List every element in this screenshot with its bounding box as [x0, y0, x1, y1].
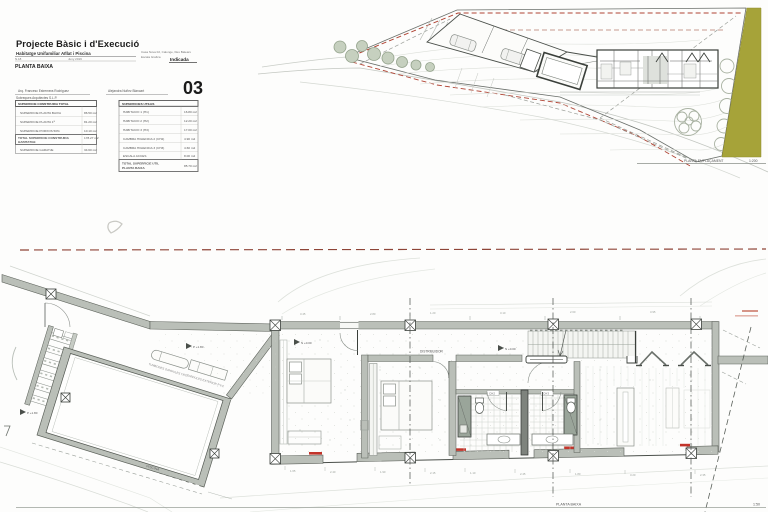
svg-text:1.65: 1.65 — [290, 469, 296, 473]
svg-text:1.90: 1.90 — [380, 470, 386, 474]
svg-text:N +0.00: N +0.00 — [505, 347, 516, 351]
svg-text:8.00 m2: 8.00 m2 — [184, 154, 195, 158]
svg-text:2.35: 2.35 — [700, 473, 706, 477]
svg-text:2.15: 2.15 — [430, 471, 436, 475]
svg-text:3.10: 3.10 — [500, 311, 506, 315]
svg-text:PLANTA BAIXA: PLANTA BAIXA — [122, 166, 145, 170]
svg-text:PLANTA BAIXA: PLANTA BAIXA — [15, 64, 53, 70]
svg-text:4.60 m2: 4.60 m2 — [184, 146, 195, 150]
svg-text:3.20: 3.20 — [630, 473, 636, 477]
svg-text:N +0.00: N +0.00 — [301, 341, 312, 345]
svg-text:PLANTA EMPLAÇAMENT: PLANTA EMPLAÇAMENT — [684, 159, 724, 163]
svg-text:81.20 m2: 81.20 m2 — [84, 120, 97, 124]
svg-text:1:50: 1:50 — [753, 503, 760, 507]
svg-text:3.45: 3.45 — [300, 312, 306, 316]
svg-text:3.95: 3.95 — [650, 310, 656, 314]
svg-text:10.10 m2: 10.10 m2 — [84, 129, 97, 133]
svg-text:16.80 m2: 16.80 m2 — [184, 110, 197, 114]
svg-text:1.10: 1.10 — [470, 471, 476, 475]
svg-text:Projecte Bàsic i d'Execució: Projecte Bàsic i d'Execució — [16, 39, 139, 49]
svg-text:DISTRIBUIDOR: DISTRIBUIDOR — [420, 350, 444, 354]
svg-text:TOTAL SUPERFICIE UTIL: TOTAL SUPERFICIE UTIL — [122, 162, 159, 166]
svg-text:17.00 m2: 17.00 m2 — [184, 128, 197, 132]
svg-text:SUPERFICIE GARATJE: SUPERFICIE GARATJE — [20, 148, 53, 152]
svg-text:1.80: 1.80 — [575, 472, 581, 476]
svg-text:86.50 m2: 86.50 m2 — [84, 111, 97, 115]
svg-text:SUPERFICIE PLANTA BAIXA: SUPERFICIE PLANTA BAIXA — [20, 111, 62, 115]
svg-text:HABITACIO 2 (H2): HABITACIO 2 (H2) — [123, 119, 149, 123]
svg-text:34.60 m2: 34.60 m2 — [84, 148, 97, 152]
svg-text:CAMBRA HIGIENICA 2 (CH2): CAMBRA HIGIENICA 2 (CH2) — [123, 137, 164, 141]
svg-text:HABITACIO 3 (H3): HABITACIO 3 (H3) — [123, 128, 149, 132]
svg-text:12.20 m2: 12.20 m2 — [184, 119, 197, 123]
svg-text:P +1.80: P +1.80 — [27, 411, 38, 415]
svg-text:HABITATGE: HABITATGE — [18, 140, 36, 144]
svg-text:Indicada: Indicada — [170, 57, 189, 62]
svg-text:1:200: 1:200 — [749, 159, 758, 163]
svg-text:SUPERFICIE PLANTA 1ª: SUPERFICIE PLANTA 1ª — [20, 120, 56, 124]
svg-text:03: 03 — [183, 78, 203, 98]
svg-text:4.90 m2: 4.90 m2 — [184, 137, 195, 141]
svg-text:Arq. Francesc Estremera Rodri: Arq. Francesc Estremera Rodriguez — [18, 89, 69, 93]
svg-text:CH3: CH3 — [543, 392, 549, 396]
svg-text:Escala Grafica: Escala Grafica — [141, 55, 161, 59]
svg-text:2.80: 2.80 — [370, 312, 376, 316]
svg-text:SUPERFICIES UTILES: SUPERFICIES UTILES — [122, 102, 155, 106]
svg-text:CAMBRA HIGIENICA 3 (CH3): CAMBRA HIGIENICA 3 (CH3) — [123, 146, 164, 150]
svg-text:PLANTA BAIXA: PLANTA BAIXA — [556, 503, 582, 507]
svg-text:85.70 m2: 85.70 m2 — [184, 164, 197, 168]
svg-text:SUPERFICIE CONSTRUIDA TOTAL: SUPERFICIE CONSTRUIDA TOTAL — [18, 102, 69, 106]
svg-text:Casa Nova 02, Calonge, Illes B: Casa Nova 02, Calonge, Illes Balears — [141, 50, 191, 54]
svg-text:CH2: CH2 — [489, 392, 495, 396]
svg-text:N.18: N.18 — [15, 57, 22, 61]
svg-text:Alejandra Nuñez Blancart: Alejandra Nuñez Blancart — [108, 89, 144, 93]
svg-text:HABITACIO 1 (H1): HABITACIO 1 (H1) — [123, 110, 149, 114]
svg-text:1.20: 1.20 — [430, 311, 436, 315]
svg-text:SUPERFICIE PORXOS 50%: SUPERFICIE PORXOS 50% — [20, 129, 60, 133]
svg-text:Sobreques Arquitectes S.L.P.: Sobreques Arquitectes S.L.P. — [16, 96, 57, 100]
svg-text:Juny 2019: Juny 2019 — [68, 57, 82, 61]
svg-text:2.45: 2.45 — [520, 472, 526, 476]
svg-text:ESCALA ACCES: ESCALA ACCES — [123, 154, 146, 158]
svg-text:2.60: 2.60 — [570, 310, 576, 314]
svg-text:Habitatge Unifamiliar Aïllat i: Habitatge Unifamiliar Aïllat i Piscina — [16, 51, 91, 56]
svg-text:2.40: 2.40 — [330, 470, 336, 474]
